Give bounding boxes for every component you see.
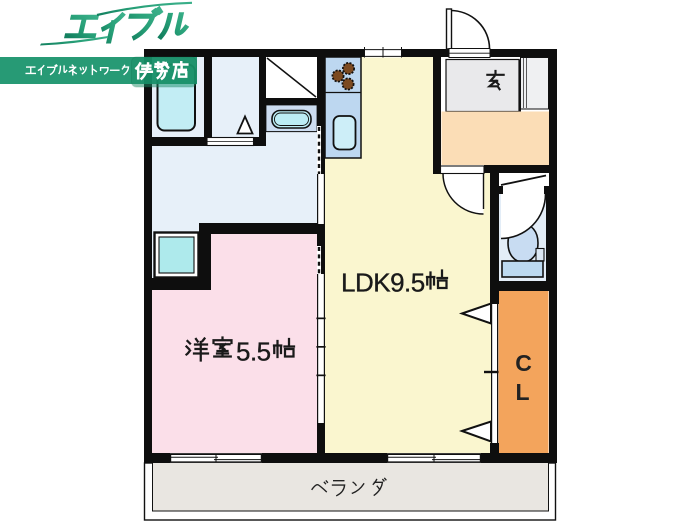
svg-text:C: C	[515, 350, 532, 376]
svg-text:LDK9.5: LDK9.5	[341, 268, 425, 298]
svg-text:5.5: 5.5	[236, 337, 271, 367]
svg-text:L: L	[515, 379, 529, 405]
